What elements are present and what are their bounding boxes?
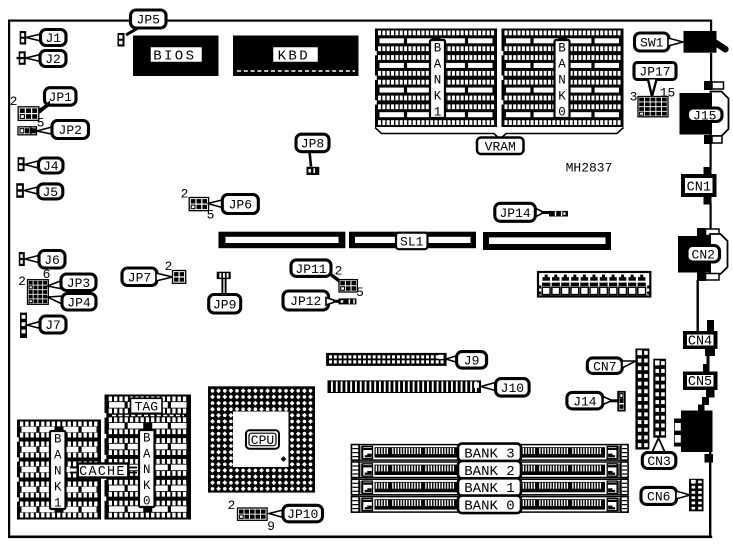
- svg-text:BIOS: BIOS: [153, 49, 196, 65]
- svg-text:2: 2: [10, 94, 18, 109]
- svg-text:CN2: CN2: [692, 247, 715, 262]
- svg-text:5: 5: [207, 208, 215, 223]
- svg-text:A: A: [558, 58, 566, 72]
- svg-text:J10: J10: [501, 381, 524, 396]
- svg-text:CN3: CN3: [647, 454, 670, 469]
- svg-text:J7: J7: [45, 318, 61, 333]
- svg-text:SL1: SL1: [400, 235, 424, 250]
- svg-text:SW1: SW1: [640, 36, 664, 51]
- svg-text:JP1: JP1: [49, 90, 73, 105]
- svg-text:3: 3: [630, 90, 638, 105]
- svg-text:J4: J4: [43, 159, 59, 174]
- svg-text:K: K: [558, 90, 566, 104]
- svg-text:N: N: [558, 74, 566, 88]
- svg-text:TAG: TAG: [135, 400, 158, 415]
- svg-text:JP8: JP8: [301, 137, 324, 152]
- svg-text:2: 2: [335, 264, 343, 279]
- svg-text:JP11: JP11: [295, 262, 326, 277]
- svg-text:B: B: [54, 433, 62, 447]
- svg-text:A: A: [143, 447, 151, 461]
- svg-text:JP10: JP10: [287, 507, 318, 522]
- svg-text:2: 2: [228, 498, 236, 513]
- svg-text:JP6: JP6: [229, 198, 252, 213]
- svg-text:J15: J15: [693, 108, 716, 123]
- svg-text:J2: J2: [45, 52, 61, 67]
- svg-text:JP14: JP14: [499, 206, 530, 221]
- svg-text:BANK 0: BANK 0: [464, 498, 514, 514]
- svg-text:N: N: [143, 463, 151, 477]
- svg-text:A: A: [54, 449, 62, 463]
- svg-text:5: 5: [37, 116, 45, 131]
- svg-text:CN7: CN7: [593, 359, 616, 374]
- svg-text:A: A: [434, 58, 442, 72]
- svg-text:CN1: CN1: [687, 180, 711, 195]
- svg-text:JP12: JP12: [290, 294, 321, 309]
- svg-text:B: B: [143, 432, 151, 446]
- svg-text:5: 5: [356, 285, 364, 300]
- svg-text:2: 2: [18, 274, 26, 289]
- svg-text:MH2837: MH2837: [566, 161, 613, 176]
- svg-text:VRAM: VRAM: [485, 139, 516, 154]
- svg-text:K: K: [54, 481, 62, 495]
- svg-text:JP3: JP3: [67, 276, 90, 291]
- svg-text:2: 2: [165, 259, 173, 274]
- svg-text:0: 0: [143, 495, 151, 509]
- svg-text:CN6: CN6: [647, 490, 670, 505]
- svg-text:JP5: JP5: [137, 13, 160, 28]
- svg-text:J6: J6: [44, 253, 60, 268]
- svg-text:J5: J5: [42, 185, 58, 200]
- svg-text:B: B: [558, 42, 566, 56]
- svg-text:CACHE: CACHE: [79, 465, 126, 480]
- svg-text:1: 1: [54, 497, 62, 511]
- svg-text:9: 9: [267, 519, 275, 534]
- svg-text:2: 2: [181, 187, 189, 202]
- svg-text:JP4: JP4: [67, 295, 91, 310]
- svg-text:J14: J14: [573, 394, 597, 409]
- svg-text:JP2: JP2: [59, 123, 82, 138]
- svg-text:1: 1: [434, 106, 442, 120]
- svg-text:0: 0: [558, 106, 566, 120]
- svg-text:J9: J9: [464, 354, 480, 369]
- svg-text:KBD: KBD: [278, 49, 310, 65]
- svg-text:CN5: CN5: [688, 375, 712, 390]
- svg-text:K: K: [434, 90, 442, 104]
- svg-text:J1: J1: [45, 31, 61, 46]
- svg-text:N: N: [434, 74, 442, 88]
- svg-text:JP7: JP7: [128, 270, 151, 285]
- svg-text:K: K: [143, 479, 151, 493]
- svg-text:JP17: JP17: [639, 65, 670, 80]
- svg-text:JP9: JP9: [213, 297, 236, 312]
- svg-text:N: N: [54, 465, 62, 479]
- svg-text:CN4: CN4: [688, 335, 712, 350]
- svg-text:B: B: [434, 42, 442, 56]
- svg-text:CPU: CPU: [251, 433, 274, 448]
